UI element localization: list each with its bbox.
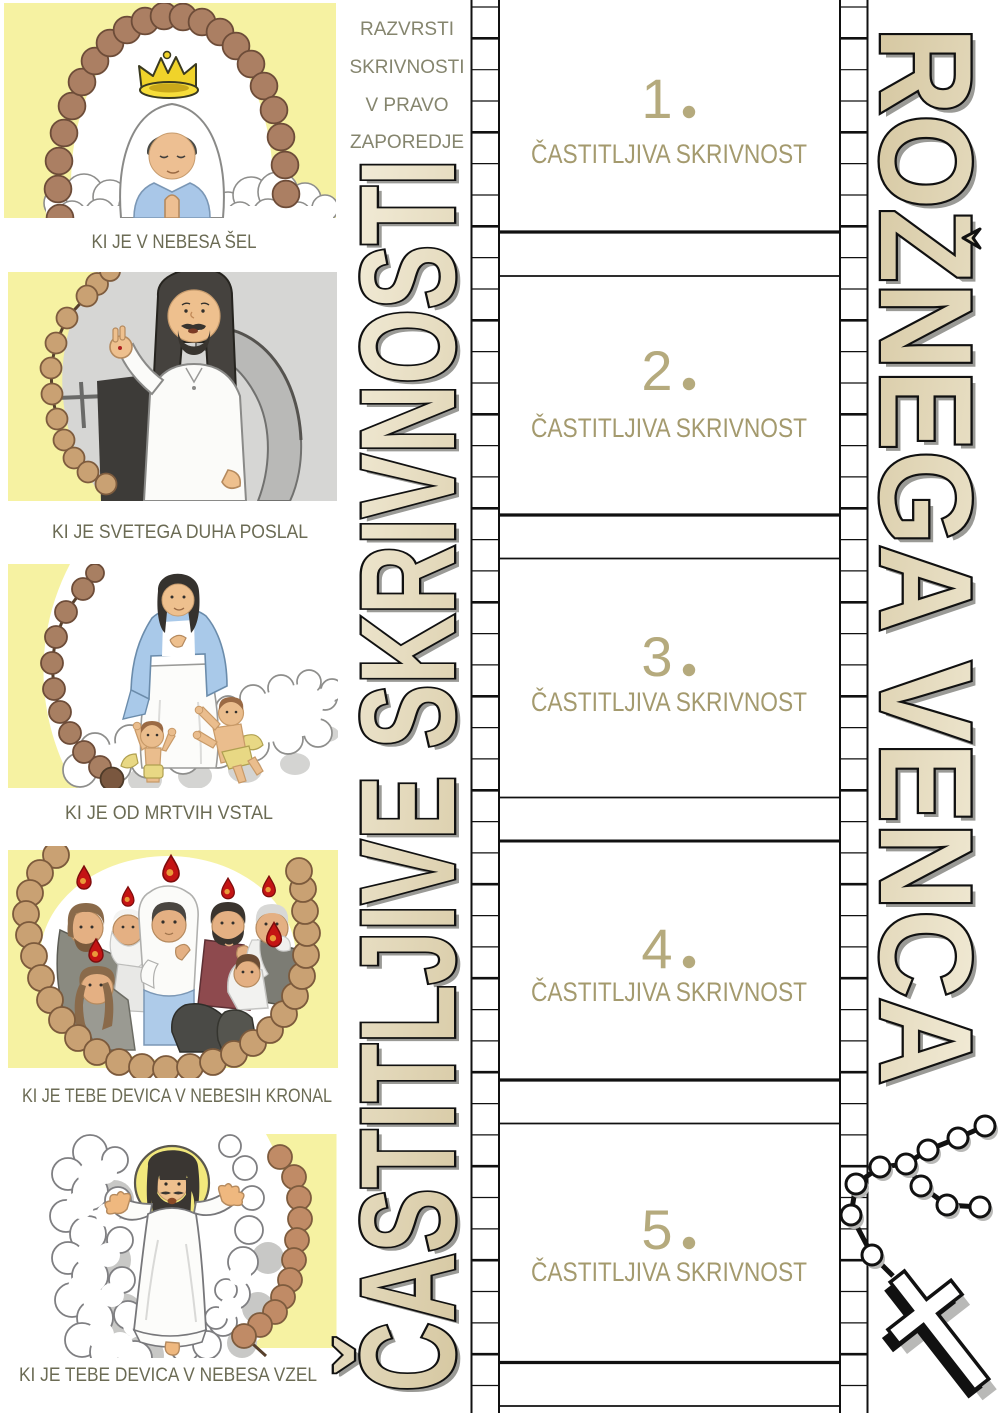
svg-text:KI JE TEBE DEVICA V NEBESA VZE: KI JE TEBE DEVICA V NEBESA VZEL — [19, 1365, 317, 1386]
svg-text:ZAPOREDJE: ZAPOREDJE — [350, 132, 464, 153]
svg-text:1: 1 — [641, 67, 672, 130]
svg-text:ČASTITLJIVA SKRIVNOST: ČASTITLJIVA SKRIVNOST — [531, 976, 807, 1007]
svg-text:KI JE OD MRTVIH VSTAL: KI JE OD MRTVIH VSTAL — [65, 803, 273, 824]
svg-text:ROZNEGA VENCA: ROZNEGA VENCA — [853, 27, 999, 1085]
svg-text:5: 5 — [641, 1198, 672, 1261]
svg-text:4: 4 — [641, 917, 672, 980]
svg-text:SKRIVNOSTI: SKRIVNOSTI — [349, 57, 464, 78]
svg-text:ČASTITLJIVA SKRIVNOST: ČASTITLJIVA SKRIVNOST — [531, 686, 807, 717]
svg-text:ČASTITLJIVA SKRIVNOST: ČASTITLJIVA SKRIVNOST — [531, 138, 807, 169]
svg-text:KI JE SVETEGA DUHA POSLAL: KI JE SVETEGA DUHA POSLAL — [52, 522, 308, 543]
svg-text:V PRAVO: V PRAVO — [365, 95, 448, 116]
svg-text:ČASTITLJIVA SKRIVNOST: ČASTITLJIVA SKRIVNOST — [531, 1256, 807, 1287]
svg-text:ČASTITLJIVE SKRIVNOSTI: ČASTITLJIVE SKRIVNOSTI — [334, 159, 483, 1392]
svg-text:2: 2 — [641, 339, 672, 402]
svg-text:3: 3 — [641, 625, 672, 688]
svg-text:ČASTITLJIVA SKRIVNOST: ČASTITLJIVA SKRIVNOST — [531, 412, 807, 443]
svg-text:RAZVRSTI: RAZVRSTI — [360, 19, 454, 40]
svg-text:KI JE V NEBESA ŠEL: KI JE V NEBESA ŠEL — [92, 231, 257, 253]
svg-text:KI JE TEBE DEVICA V NEBESIH KR: KI JE TEBE DEVICA V NEBESIH KRONAL — [22, 1086, 332, 1107]
